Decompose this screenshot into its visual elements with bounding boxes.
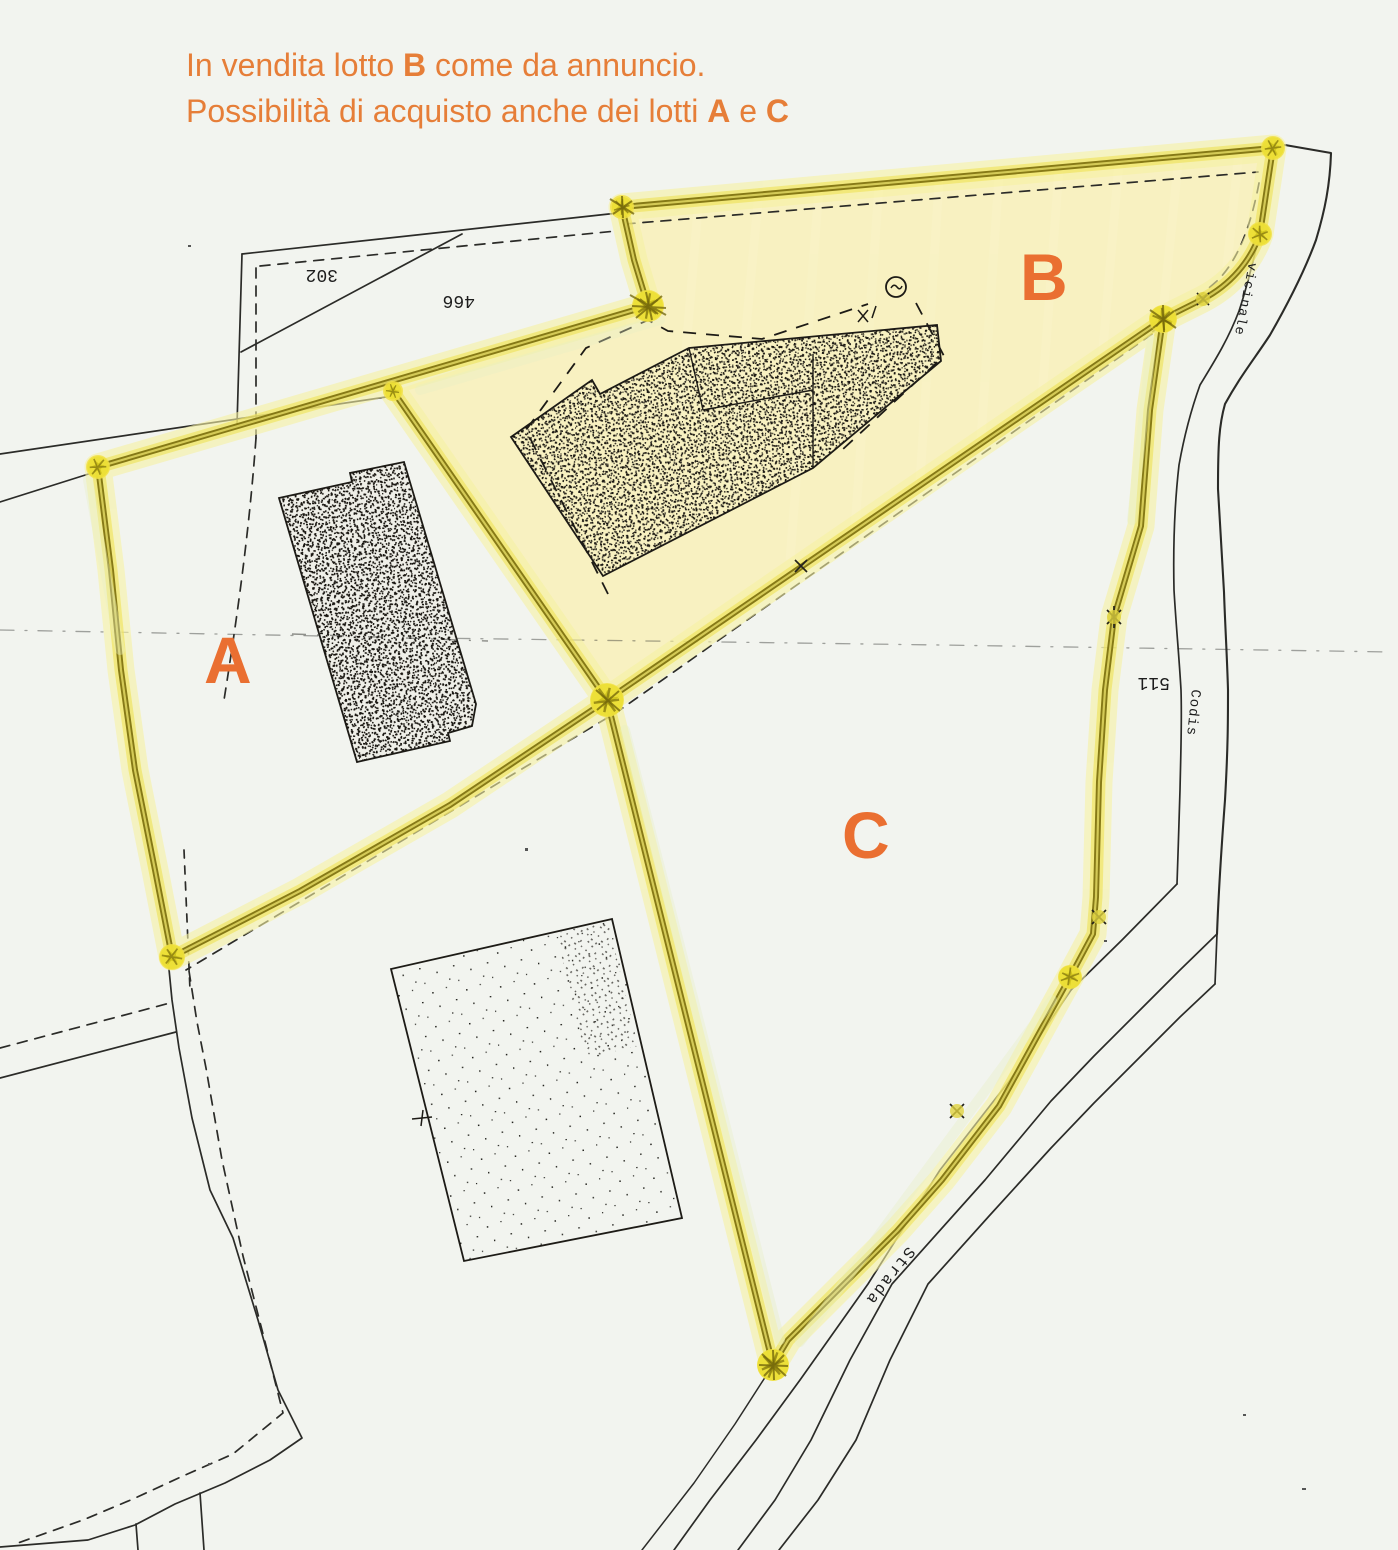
svg-text:B: B	[1020, 240, 1068, 314]
svg-text:C: C	[842, 798, 890, 872]
svg-text:In vendita lotto B come da ann: In vendita lotto B come da annuncio.	[186, 47, 705, 83]
svg-text:A: A	[204, 623, 252, 697]
svg-text:302: 302	[306, 264, 338, 284]
svg-text:466: 466	[443, 290, 475, 310]
svg-text:511: 511	[1138, 672, 1170, 692]
svg-text:Possibilità di acquisto anche: Possibilità di acquisto anche dei lotti …	[186, 93, 789, 129]
